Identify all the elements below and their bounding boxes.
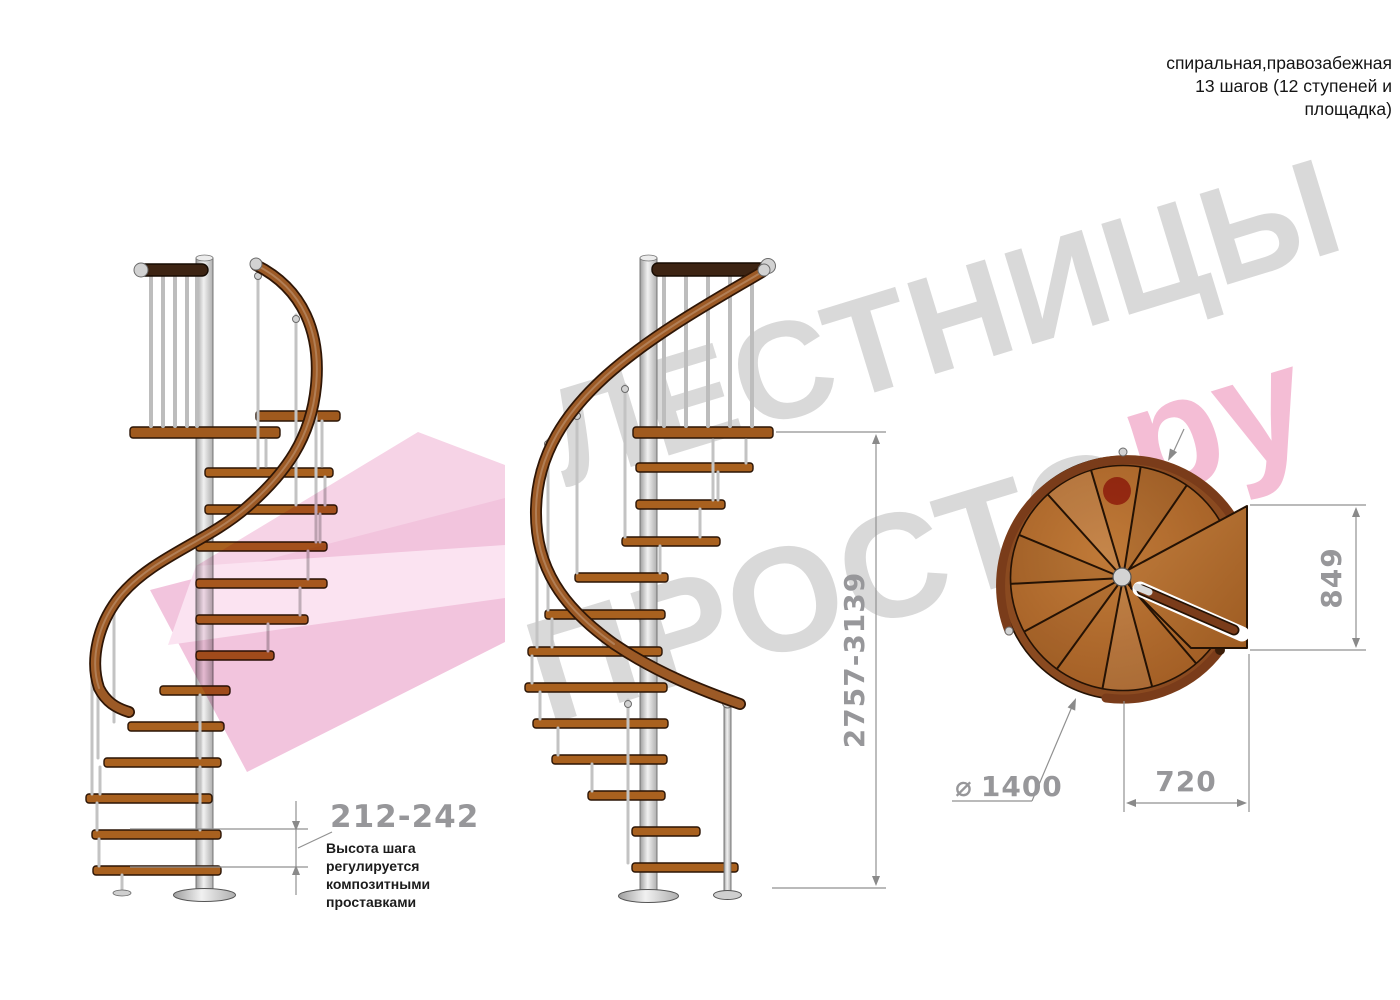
side-view-steps bbox=[525, 463, 753, 872]
dim-platform-depth: 849 bbox=[1250, 505, 1366, 650]
diameter-value: ⌀1400 bbox=[955, 770, 1063, 803]
plan-center-pole bbox=[1113, 568, 1131, 586]
platform-railing bbox=[652, 259, 776, 427]
total-height-value: 2757-3139 bbox=[838, 572, 871, 748]
dim-total-height: 2757-3139 bbox=[772, 432, 886, 888]
handrail-top-cap bbox=[758, 264, 770, 276]
drawing-sheet: ЛЕСТНИЦЫ ПРОСТО ру bbox=[0, 0, 1400, 1000]
platform-railing bbox=[134, 263, 208, 426]
title-line-1: спиральная,правозабежная bbox=[980, 52, 1392, 75]
plan-view bbox=[1001, 429, 1247, 700]
step-height-value: 212-242 bbox=[330, 799, 479, 835]
handrail-top-cap bbox=[250, 258, 262, 270]
drawing-title: спиральная,правозабежная 13 шагов (12 ст… bbox=[980, 52, 1392, 121]
staircase-drawing: 212-242 Высота шага регулируется компози… bbox=[0, 0, 1400, 1000]
title-line-3: площадка) bbox=[980, 98, 1392, 121]
platform-width-value: 720 bbox=[1155, 765, 1216, 798]
dim-diameter: ⌀1400 bbox=[952, 698, 1076, 803]
step-height-note-3: композитными bbox=[326, 876, 430, 892]
logo-dot bbox=[1103, 477, 1131, 505]
step-height-note-4: проставками bbox=[326, 894, 416, 910]
step-height-note-2: регулируется bbox=[326, 858, 419, 874]
step-height-note-1: Высота шага bbox=[326, 840, 416, 856]
side-elevation-view bbox=[525, 255, 776, 903]
platform-depth-value: 849 bbox=[1315, 547, 1348, 608]
landing-platform bbox=[633, 427, 773, 438]
title-line-2: 13 шагов (12 ступеней и bbox=[980, 75, 1392, 98]
plan-top-leader bbox=[1168, 429, 1184, 461]
rail-end-knob bbox=[134, 263, 148, 277]
